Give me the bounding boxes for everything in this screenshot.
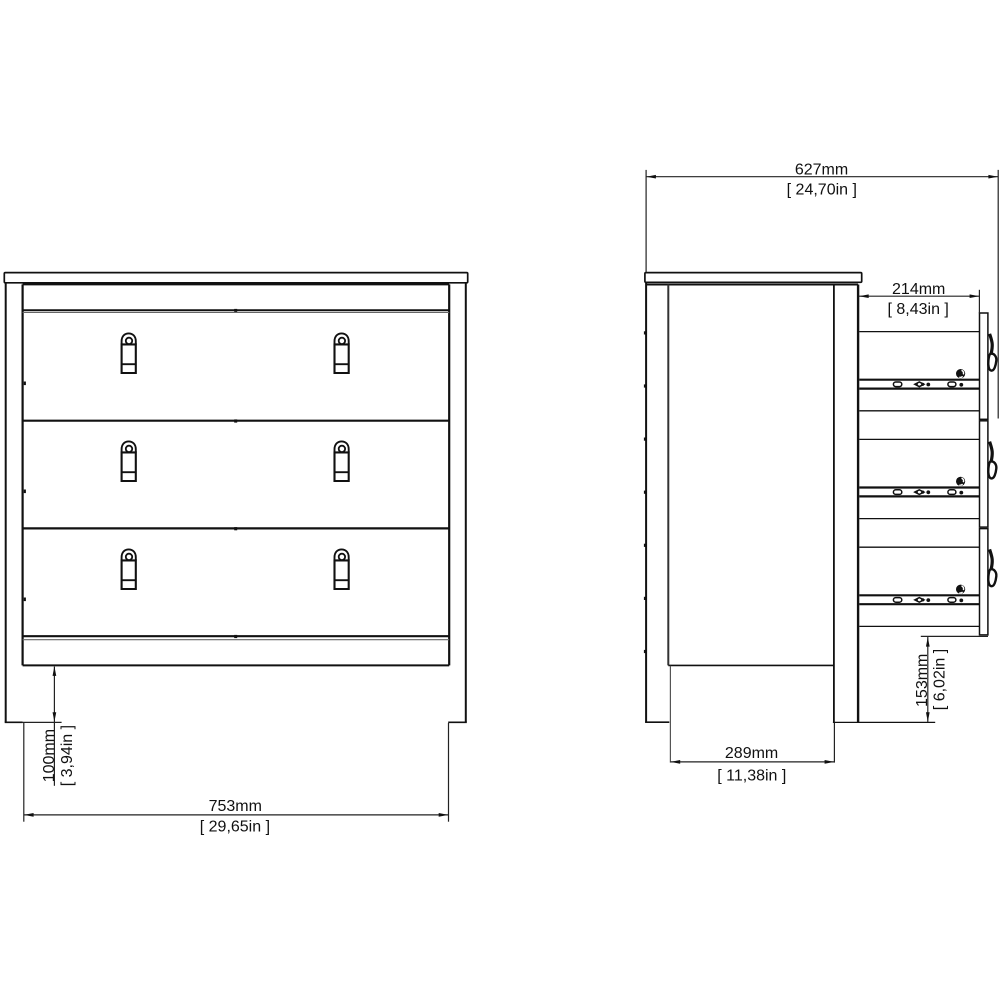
svg-text:153mm: 153mm [914, 654, 931, 707]
svg-text:[ 11,38in ]: [ 11,38in ] [717, 767, 786, 784]
svg-text:753mm: 753mm [209, 798, 262, 815]
svg-text:[ 8,43in ]: [ 8,43in ] [888, 301, 949, 318]
svg-text:[ 24,70in ]: [ 24,70in ] [787, 182, 857, 199]
svg-text:[ 3,94in ]: [ 3,94in ] [59, 725, 76, 786]
svg-text:214mm: 214mm [892, 281, 945, 298]
svg-text:[ 29,65in ]: [ 29,65in ] [200, 819, 270, 836]
svg-text:100mm: 100mm [41, 729, 58, 782]
svg-text:[ 6,02in ]: [ 6,02in ] [931, 649, 948, 710]
svg-text:627mm: 627mm [795, 162, 848, 179]
svg-text:289mm: 289mm [725, 745, 778, 762]
